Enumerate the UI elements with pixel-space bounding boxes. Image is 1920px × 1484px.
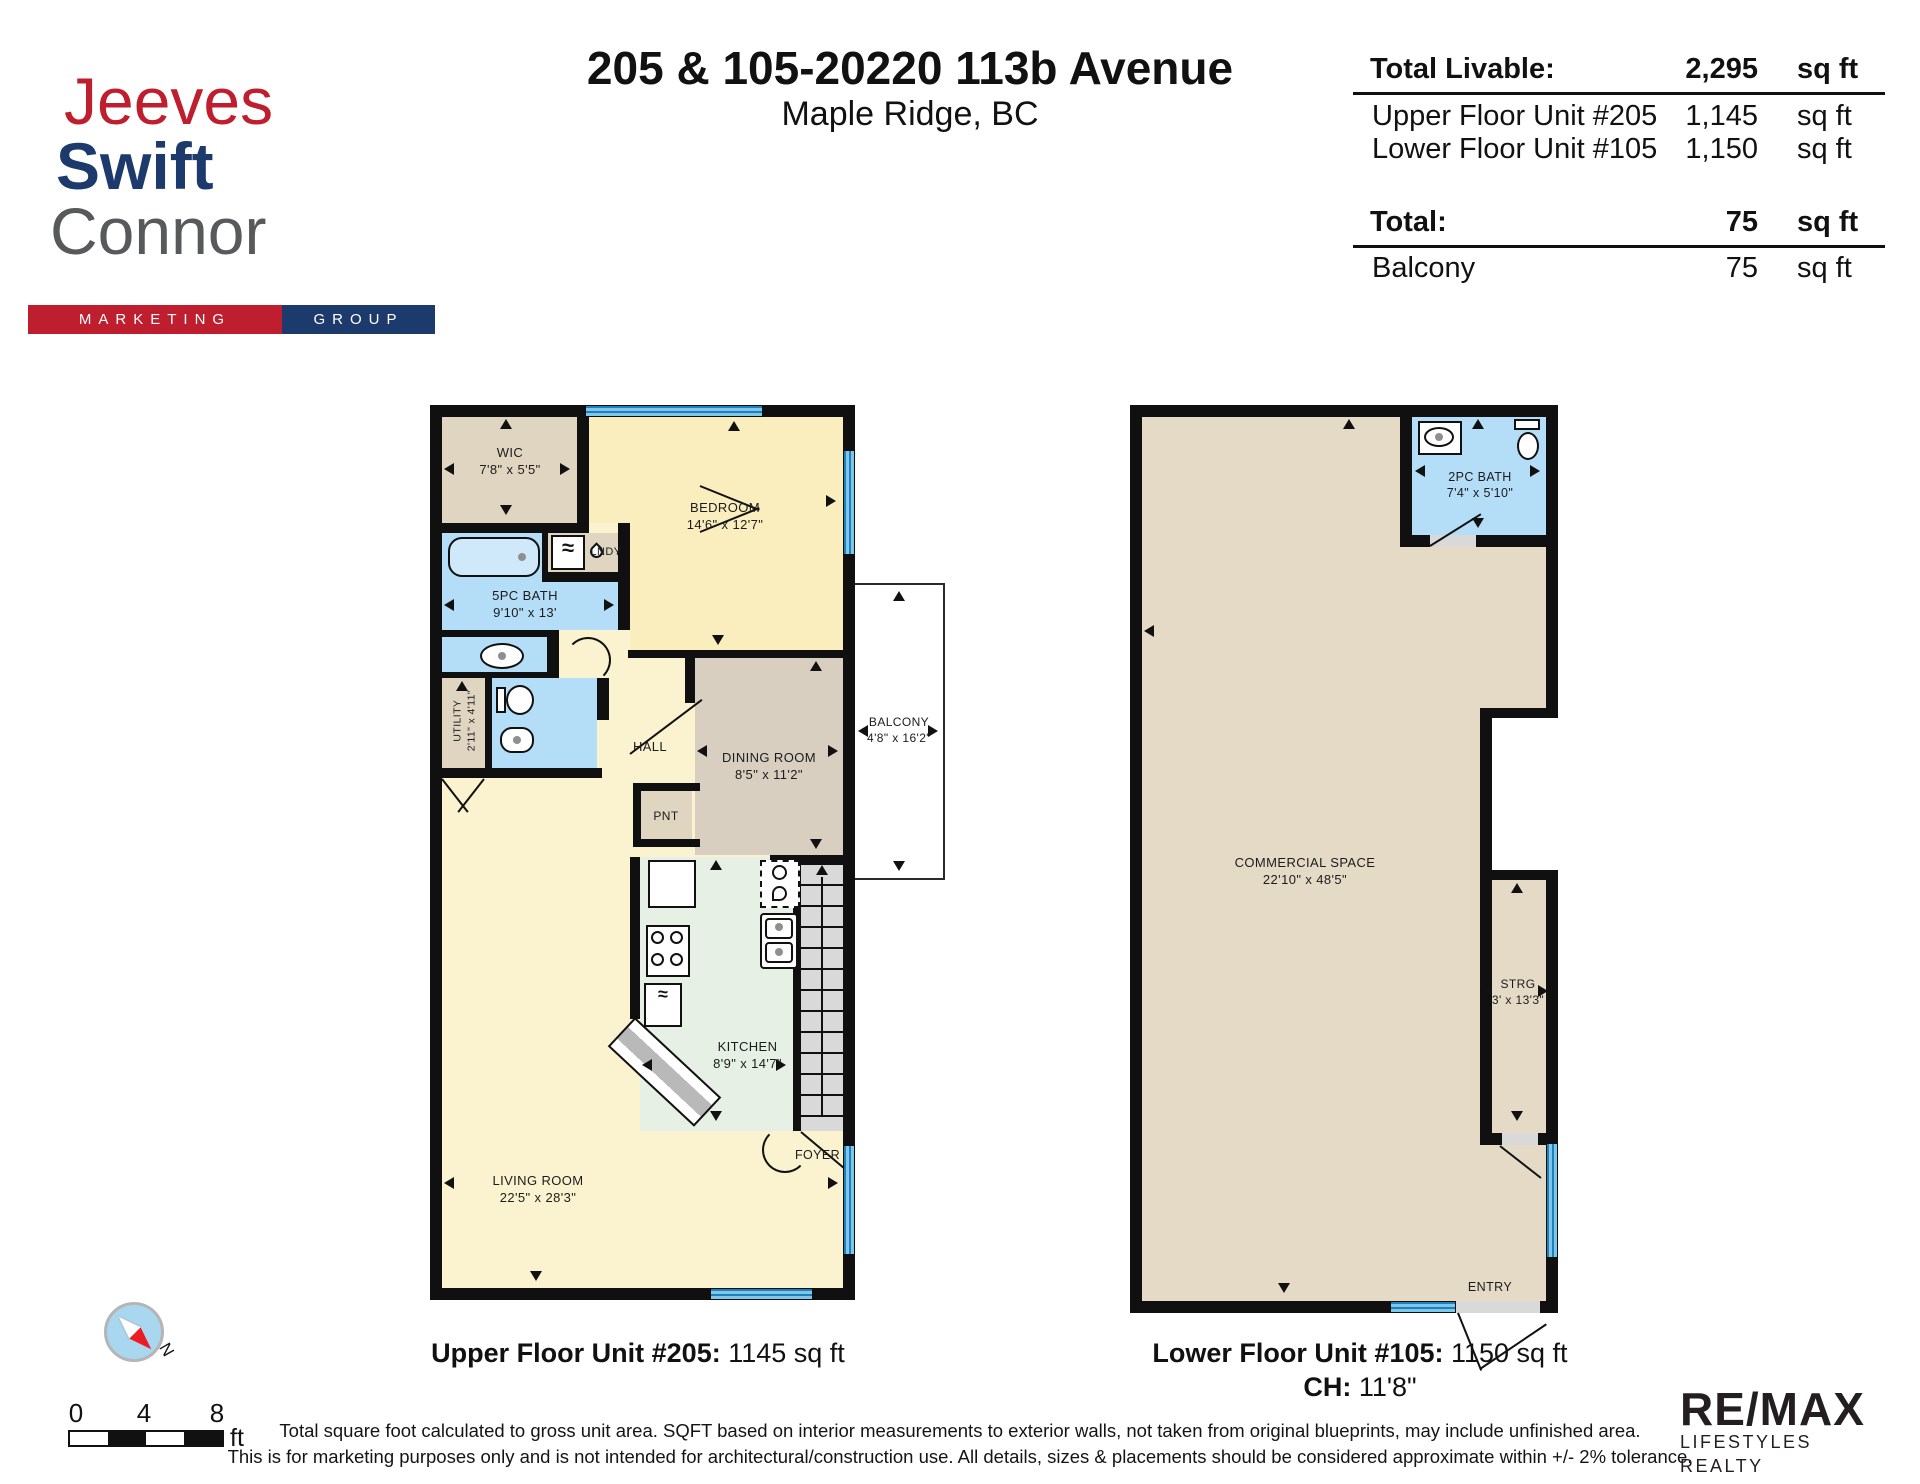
dimension-arrow: [1144, 625, 1154, 637]
logo-banner-marketing: MARKETING: [28, 305, 282, 334]
room-label-dining: DINING ROOM 8'5" x 11'2": [698, 750, 840, 784]
wall: [442, 630, 547, 637]
table-value: 75: [1640, 252, 1758, 285]
dimension-arrow: [828, 1177, 838, 1189]
logo-line-jeeves: Jeeves: [50, 68, 450, 134]
bathtub-icon: [448, 537, 540, 577]
table-value: 1,150: [1640, 133, 1758, 166]
dimension-arrow: [642, 1059, 652, 1071]
caption-bold: Lower Floor Unit #105:: [1152, 1338, 1443, 1368]
window: [1390, 1301, 1456, 1313]
stair-direction-arrow: [816, 865, 828, 875]
dimension-arrow: [810, 839, 822, 849]
sink-drain-icon: [513, 736, 521, 744]
dimension-arrow: [858, 725, 868, 737]
upper-plan-caption: Upper Floor Unit #205: 1145 sq ft: [338, 1338, 938, 1369]
table-row: Upper Floor Unit #205: [1372, 100, 1657, 133]
wall: [630, 857, 640, 1019]
wall: [685, 653, 695, 703]
dimension-arrow: [444, 463, 454, 475]
table-row: Total:: [1370, 206, 1447, 239]
toilet-bowl-icon: [506, 685, 534, 715]
room-label-pnt: PNT: [642, 809, 690, 825]
dimension-arrow: [810, 661, 822, 671]
window: [710, 1288, 813, 1300]
compass-icon: [104, 1302, 164, 1362]
dishwasher-glyph: [772, 886, 787, 901]
compass-needle: [113, 1311, 157, 1355]
table-row: Total Livable:: [1370, 53, 1555, 86]
room-label-living: LIVING ROOM 22'5" x 28'3": [458, 1173, 618, 1207]
table-unit: sq ft: [1797, 133, 1852, 166]
wall: [577, 417, 589, 523]
toilet-tank-icon: [1514, 419, 1540, 430]
logo-line-swift: Swift: [50, 134, 450, 198]
burner-icon: [670, 931, 683, 944]
room-label-hall: HALL: [615, 739, 685, 756]
room-label-kitchen: KITCHEN 8'9" x 14'7": [685, 1039, 810, 1073]
dimension-arrow: [560, 463, 570, 475]
window: [585, 405, 763, 417]
table-unit: sq ft: [1797, 206, 1858, 239]
bedroom: [630, 523, 843, 650]
door-arc: [565, 637, 611, 683]
entry-threshold: [1456, 1301, 1540, 1313]
logo-banner-group: GROUP: [282, 305, 435, 334]
table-divider: [1353, 245, 1885, 248]
remax-tagline: LIFESTYLES REALTY: [1680, 1430, 1880, 1478]
sink-drain-icon: [775, 948, 783, 956]
wall: [442, 768, 602, 778]
sink-drain-icon: [775, 923, 783, 931]
room-label-5pc-bath: 5PC BATH 9'10" x 13': [465, 588, 585, 622]
scale-bar-track: [68, 1430, 224, 1447]
burner-icon: [651, 931, 664, 944]
wall: [547, 630, 559, 678]
caption-text: 1145 sq ft: [721, 1338, 845, 1368]
fridge-icon: [648, 860, 696, 908]
disclaimer-line1: Total square foot calculated to gross un…: [210, 1418, 1710, 1444]
dimension-arrow: [1472, 419, 1484, 429]
dimension-arrow: [710, 860, 722, 870]
wall: [1400, 417, 1412, 547]
scale-segment: [146, 1432, 184, 1445]
window: [843, 450, 855, 555]
table-unit: sq ft: [1797, 100, 1852, 133]
room-label-utility: UTILITY 2'11" x 4'11": [451, 674, 478, 768]
dimension-arrow: [1343, 419, 1355, 429]
floorplan-sheet: Jeeves Swift Connor MARKETING GROUP 205 …: [0, 0, 1920, 1484]
dimension-arrow: [444, 1177, 454, 1189]
oven-glyph: ≈: [658, 984, 668, 1004]
logo-banner: MARKETING GROUP: [28, 305, 435, 334]
room-label-commercial: COMMERCIAL SPACE 22'10" x 48'5": [1185, 855, 1425, 889]
scale-segment: [108, 1432, 146, 1445]
scale-tick-0: 0: [64, 1398, 88, 1429]
dimension-arrow: [893, 861, 905, 871]
room-label-foyer: FOYER: [780, 1147, 855, 1163]
table-value: 2,295: [1640, 53, 1758, 86]
dimension-arrow: [928, 725, 938, 737]
scale-tick-4: 4: [132, 1398, 156, 1429]
wall: [597, 678, 609, 720]
toilet-bowl-icon: [1517, 432, 1539, 460]
stair-arrow-stem: [821, 877, 823, 1117]
room-label-entry: ENTRY: [1440, 1279, 1540, 1295]
wall: [442, 523, 589, 533]
logo-line-connor: Connor: [50, 198, 450, 264]
dimension-arrow: [1511, 1111, 1523, 1121]
table-unit: sq ft: [1797, 252, 1852, 285]
exterior-notch: [1492, 718, 1558, 870]
dimension-arrow: [1511, 883, 1523, 893]
sink-drain-icon: [498, 652, 506, 660]
dimension-arrow: [1278, 1283, 1290, 1293]
caption-text: 1150 sq ft: [1443, 1338, 1567, 1368]
dimension-arrow: [530, 1271, 542, 1281]
room-label-bedroom: BEDROOM 14'6" x 12'7": [645, 500, 805, 534]
dimension-arrow: [444, 599, 454, 611]
wall: [633, 783, 700, 791]
scale-segment: [70, 1432, 108, 1445]
address-title: 205 & 105-20220 113b Avenue: [490, 42, 1330, 94]
oven-icon: ≈: [644, 983, 682, 1027]
dimension-arrow: [728, 421, 740, 431]
table-value: 75: [1640, 206, 1758, 239]
window: [1546, 1143, 1558, 1258]
table-unit: sq ft: [1797, 53, 1858, 86]
dimension-arrow: [893, 591, 905, 601]
ceiling-height-caption: CH: 11'8": [1060, 1372, 1660, 1403]
caption-bold: CH:: [1303, 1372, 1351, 1402]
wall: [1480, 708, 1492, 880]
room-label-2pc-bath: 2PC BATH 7'4" x 5'10": [1420, 469, 1540, 502]
toilet-tank-icon: [496, 687, 506, 713]
wall: [1480, 870, 1558, 880]
lower-plan-caption: Lower Floor Unit #105: 1150 sq ft: [1060, 1338, 1660, 1369]
sink-drain-icon: [1435, 433, 1443, 441]
wall: [633, 783, 641, 847]
table-value: 1,145: [1640, 100, 1758, 133]
remax-logo: RE/MAX LIFESTYLES REALTY: [1680, 1388, 1880, 1478]
table-row: Lower Floor Unit #105: [1372, 133, 1657, 166]
page-title: 205 & 105-20220 113b Avenue Maple Ridge,…: [490, 42, 1330, 134]
remax-wordmark: RE/MAX: [1680, 1388, 1880, 1430]
room-label-lndy: LNDY: [582, 545, 630, 559]
tub-drain-icon: [518, 553, 526, 561]
dimension-arrow: [500, 419, 512, 429]
dimension-arrow: [710, 1111, 722, 1121]
table-divider: [1353, 92, 1885, 95]
wall: [1480, 880, 1492, 1145]
wall: [542, 572, 630, 582]
dimension-arrow: [500, 505, 512, 515]
room-label-wic: WIC 7'8" x 5'5": [460, 445, 560, 479]
wall: [633, 839, 700, 847]
balcony: BALCONY 4'8" x 16'2": [855, 583, 945, 880]
dimension-arrow: [604, 599, 614, 611]
caption-text: 11'8": [1351, 1372, 1416, 1402]
caption-bold: Upper Floor Unit #205:: [431, 1338, 721, 1368]
dishwasher-glyph: [772, 865, 787, 880]
upper-floor-plan: ≈ ≈: [430, 405, 855, 1300]
washer-glyph: ≈: [562, 535, 574, 560]
dimension-arrow: [1472, 518, 1484, 528]
brokerage-logo: Jeeves Swift Connor: [50, 68, 450, 264]
burner-icon: [651, 953, 664, 966]
dimension-arrow: [712, 635, 724, 645]
room-label-strg: STRG 3' x 13'3": [1482, 977, 1554, 1008]
door-threshold: [1502, 1133, 1538, 1145]
burner-icon: [670, 953, 683, 966]
wall: [628, 650, 843, 658]
washer-icon: ≈: [551, 535, 585, 570]
disclaimer-line2: This is for marketing purposes only and …: [210, 1444, 1710, 1470]
dimension-arrow: [826, 495, 836, 507]
lower-floor-plan: 2PC BATH 7'4" x 5'10" COMMERCIAL SPACE 2…: [1130, 405, 1558, 1313]
wall: [485, 678, 492, 768]
city-subtitle: Maple Ridge, BC: [490, 94, 1330, 134]
disclaimer: Total square foot calculated to gross un…: [210, 1418, 1710, 1469]
table-row: Balcony: [1372, 252, 1475, 285]
